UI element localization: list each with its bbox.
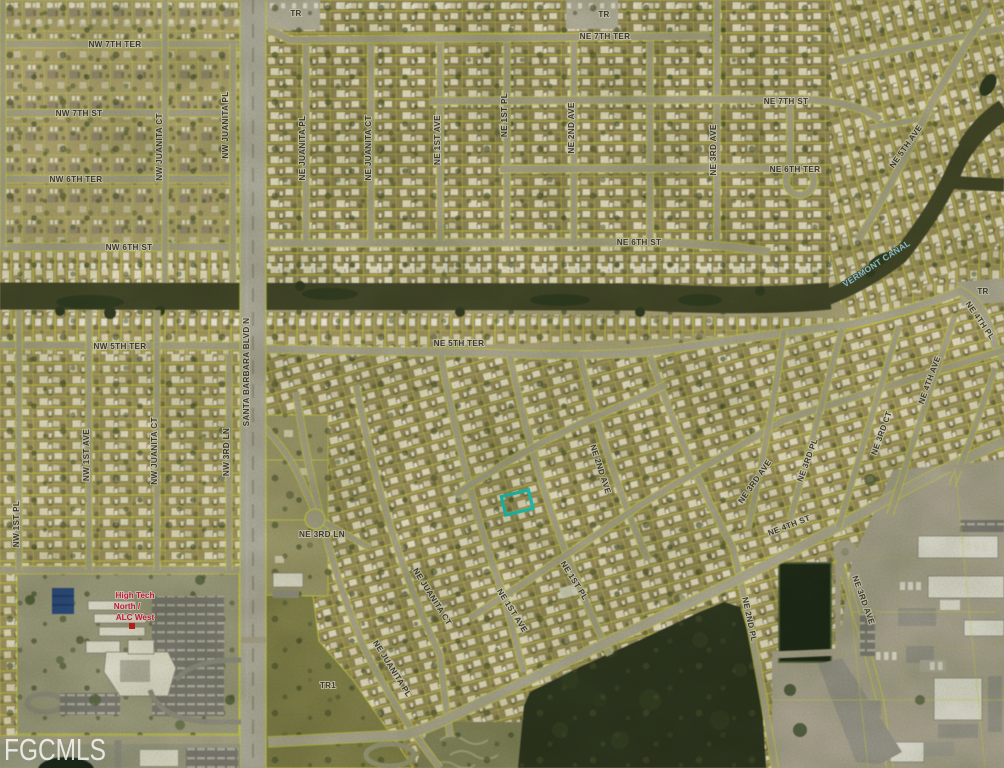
svg-text:FGCMLS: FGCMLS (4, 732, 106, 767)
